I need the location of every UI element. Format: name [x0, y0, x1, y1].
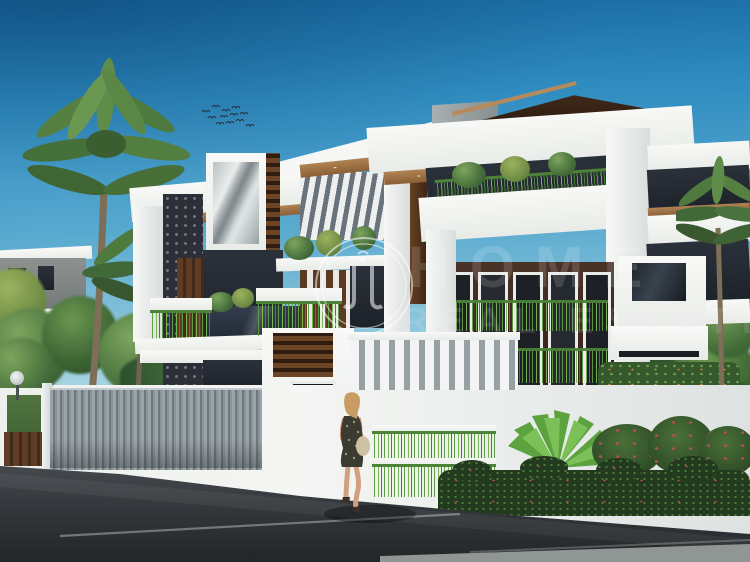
terrace-plant	[284, 236, 314, 260]
architectural-rendering: HOME REAL ESTATE	[0, 0, 750, 562]
terrace-plant	[316, 230, 342, 256]
glass-reflection	[213, 162, 259, 244]
balcony-plant	[232, 288, 254, 308]
leg	[356, 466, 359, 507]
terrace-plant	[500, 156, 530, 182]
garden-lamp-post	[16, 384, 19, 400]
shoe	[352, 507, 360, 513]
hair	[344, 392, 360, 419]
center-dark-wall	[350, 266, 384, 328]
terrace-plant	[352, 226, 376, 250]
garden-lamp-globe	[10, 371, 24, 385]
leg	[346, 466, 348, 497]
box-window	[206, 153, 280, 253]
handbag	[356, 436, 370, 456]
picket-fence-rail	[348, 332, 520, 340]
road	[0, 440, 750, 562]
shoe	[342, 497, 350, 503]
pedestrian-woman	[330, 390, 374, 522]
terrace-plant	[452, 162, 486, 188]
entry-gate-wood-slats	[273, 333, 333, 377]
hanging-grass	[150, 310, 212, 339]
window-vine-plants	[440, 300, 608, 331]
terrace-plant	[548, 152, 576, 176]
picket-fence	[350, 338, 518, 390]
